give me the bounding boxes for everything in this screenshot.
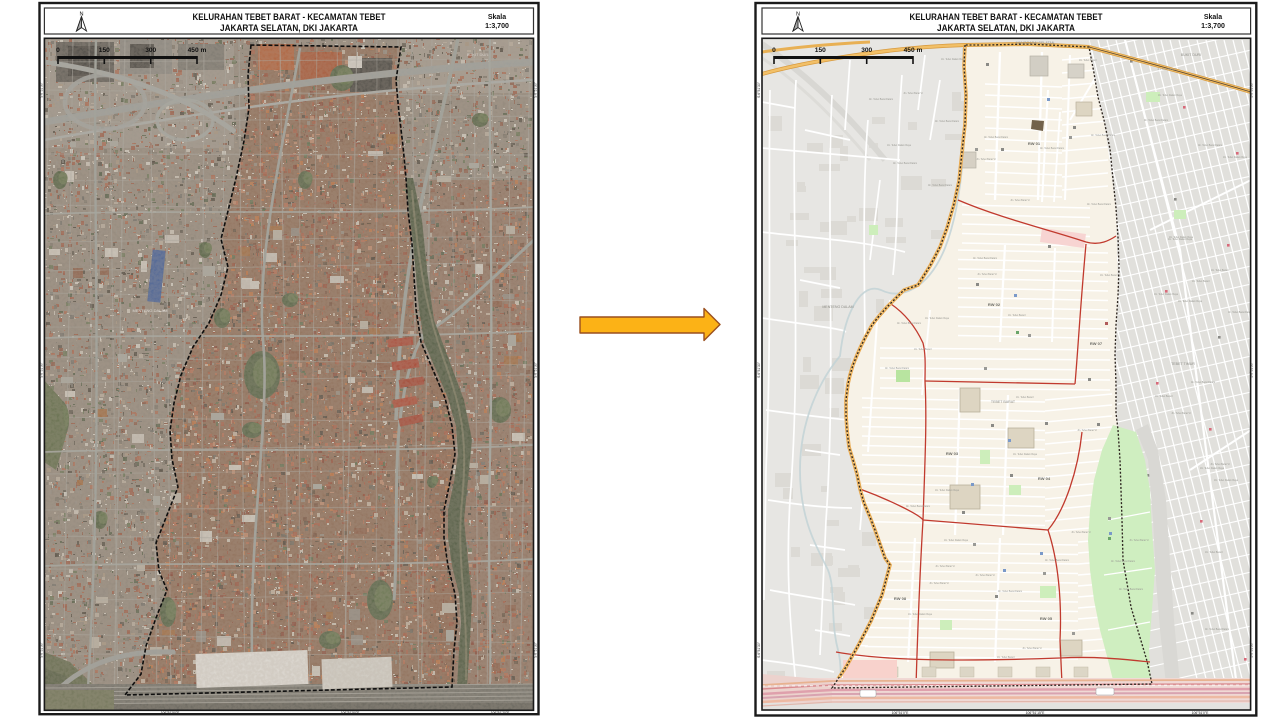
svg-text:Jln. Tebet Dalam Raya: Jln. Tebet Dalam Raya [1013,453,1038,456]
svg-text:MENTENG DALAM: MENTENG DALAM [822,305,853,309]
svg-text:Jln. Tebet Barat VI: Jln. Tebet Barat VI [1129,539,1149,542]
svg-text:Jln. Tebet Barat Dalam: Jln. Tebet Barat Dalam [1111,560,1135,563]
svg-text:S 6°51'30": S 6°51'30" [1250,641,1254,658]
svg-text:Jln. Tebet Barat VI: Jln. Tebet Barat VI [1071,531,1091,534]
svg-text:Jln. Tebet Barat Dalam: Jln. Tebet Barat Dalam [1091,134,1115,137]
svg-text:Skala: Skala [488,14,506,21]
svg-text:Jln. Tebet Dalam Raya: Jln. Tebet Dalam Raya [944,539,969,542]
svg-text:Jln. Tebet Barat Dalam: Jln. Tebet Barat Dalam [935,120,959,123]
svg-text:Jln. Tebet Barat Dalam: Jln. Tebet Barat Dalam [1144,119,1168,122]
svg-text:300: 300 [861,47,872,54]
svg-text:Jln. Tebet Barat Dalam: Jln. Tebet Barat Dalam [1205,628,1229,631]
svg-text:Skala: Skala [1204,14,1222,21]
svg-text:Jln. Tebet Barat Dalam: Jln. Tebet Barat Dalam [1198,144,1222,147]
svg-text:RW 05: RW 05 [1040,616,1053,621]
svg-text:S 6°51'30": S 6°51'30" [757,361,761,378]
svg-text:Jln. Tebet Dalam Raya: Jln. Tebet Dalam Raya [1158,94,1183,97]
svg-text:106°51'50"E: 106°51'50"E [341,711,360,715]
svg-text:Jln. Tebet Dalam Raya: Jln. Tebet Dalam Raya [935,489,960,492]
svg-text:Jln. Tebet Barat Dalam: Jln. Tebet Barat Dalam [973,257,997,260]
svg-text:JAKARTA SELATAN, DKI JAKARTA: JAKARTA SELATAN, DKI JAKARTA [937,23,1075,34]
svg-text:Jln. Tebet Dalam Raya: Jln. Tebet Dalam Raya [925,317,950,320]
svg-text:KELURAHAN TEBET BARAT - KECAMA: KELURAHAN TEBET BARAT - KECAMATAN TEBET [193,12,386,23]
svg-text:Jln. Tebet Barat VI: Jln. Tebet Barat VI [935,565,955,568]
svg-text:Jln. Tebet Dalam Raya: Jln. Tebet Dalam Raya [1154,293,1179,296]
svg-text:300: 300 [145,47,156,54]
svg-text:Jln. Tebet Barat Dalam: Jln. Tebet Barat Dalam [1119,588,1143,591]
svg-text:0: 0 [772,47,776,54]
svg-text:Jln. Tebet Dalam Raya: Jln. Tebet Dalam Raya [908,613,933,616]
svg-text:Jln. Tebet Dalam Raya: Jln. Tebet Dalam Raya [1168,238,1193,241]
svg-text:106°51'50"E: 106°51'50"E [161,711,180,715]
svg-text:S 6°51'30": S 6°51'30" [757,81,761,98]
svg-text:S 6°51'30": S 6°51'30" [534,641,538,658]
svg-text:1:3,700: 1:3,700 [485,23,509,30]
svg-text:Jln. Tebet Barat I: Jln. Tebet Barat I [1205,551,1223,554]
svg-text:Jln. Tebet Barat Dalam: Jln. Tebet Barat Dalam [1040,147,1064,150]
svg-text:Jln. Tebet Barat VI: Jln. Tebet Barat VI [977,273,997,276]
svg-text:Jln. Tebet Barat I: Jln. Tebet Barat I [1016,396,1034,399]
svg-text:450 m: 450 m [188,47,207,54]
svg-text:1:3,700: 1:3,700 [1201,23,1225,30]
svg-text:Jln. Tebet Barat I: Jln. Tebet Barat I [1192,280,1210,283]
svg-text:Jln. Tebet Dalam Raya: Jln. Tebet Dalam Raya [1200,467,1225,470]
svg-text:RW 01: RW 01 [1028,141,1041,146]
svg-text:Jln. Tebet Barat I: Jln. Tebet Barat I [997,656,1015,659]
svg-text:450 m: 450 m [904,47,923,54]
svg-text:Jln. Tebet Barat I: Jln. Tebet Barat I [1211,269,1229,272]
svg-text:S 6°51'30": S 6°51'30" [534,81,538,98]
svg-text:Jln. Tebet Barat Dalam: Jln. Tebet Barat Dalam [1045,559,1069,562]
svg-text:Jln. Tebet Barat VI: Jln. Tebet Barat VI [1010,199,1030,202]
svg-text:RW 04: RW 04 [1038,476,1051,481]
svg-text:Jln. Tebet Dalam Raya: Jln. Tebet Dalam Raya [1214,479,1239,482]
svg-text:150: 150 [815,47,826,54]
svg-text:Jln. Tebet Dalam Raya: Jln. Tebet Dalam Raya [887,144,912,147]
svg-text:MANGGARAI SELATAN: MANGGARAI SELATAN [1016,41,1055,45]
svg-text:Jln. Tebet Barat VI: Jln. Tebet Barat VI [975,574,995,577]
svg-text:Jln. Tebet Barat I: Jln. Tebet Barat I [1100,274,1118,277]
svg-text:Jln. Tebet Barat Dalam: Jln. Tebet Barat Dalam [984,136,1008,139]
svg-text:Jln. Tebet Barat VI: Jln. Tebet Barat VI [1171,412,1191,415]
svg-text:TEBET BARAT: TEBET BARAT [991,400,1016,404]
svg-text:Jln. Tebet Dalam Raya: Jln. Tebet Dalam Raya [1223,156,1248,159]
svg-text:Jln. Tebet Barat Dalam: Jln. Tebet Barat Dalam [1191,381,1215,384]
svg-text:Jln. Tebet Barat Dalam: Jln. Tebet Barat Dalam [897,322,921,325]
svg-text:JAKARTA SELATAN, DKI JAKARTA: JAKARTA SELATAN, DKI JAKARTA [220,23,358,34]
svg-text:RW 07: RW 07 [1090,341,1103,346]
svg-text:Jln. Tebet Dalam Raya: Jln. Tebet Dalam Raya [1178,300,1203,303]
svg-text:Jln. Tebet Barat Dalam: Jln. Tebet Barat Dalam [928,184,952,187]
svg-text:Jln. Tebet Barat Dalam: Jln. Tebet Barat Dalam [1087,203,1111,206]
svg-text:BUKIT DURI: BUKIT DURI [1181,53,1201,57]
svg-text:Jln. Tebet Barat VI: Jln. Tebet Barat VI [976,158,996,161]
svg-text:Jln. Tebet Barat VI: Jln. Tebet Barat VI [903,92,923,95]
svg-text:Jln. Tebet Barat VI: Jln. Tebet Barat VI [1022,647,1042,650]
svg-text:Jln. Tebet Barat VI: Jln. Tebet Barat VI [1157,68,1177,71]
svg-text:Jln. Tebet Barat Dalam: Jln. Tebet Barat Dalam [906,505,930,508]
svg-text:Jln. Tebet Barat I: Jln. Tebet Barat I [1008,314,1026,317]
svg-text:S 6°51'30": S 6°51'30" [40,361,44,378]
svg-text:S 6°51'30": S 6°51'30" [40,81,44,98]
svg-text:Jln. Tebet Barat Dalam: Jln. Tebet Barat Dalam [869,98,893,101]
svg-text:Jln. Tebet Barat I: Jln. Tebet Barat I [1079,59,1097,62]
svg-text:Jln. Tebet Barat VI: Jln. Tebet Barat VI [1077,429,1097,432]
svg-text:106°51'20"E: 106°51'20"E [491,711,510,715]
svg-text:S 6°51'30": S 6°51'30" [534,361,538,378]
svg-text:106°51'15"E: 106°51'15"E [1026,711,1045,715]
svg-text:106°51'0"E: 106°51'0"E [892,711,910,715]
svg-text:S 6°51'30": S 6°51'30" [757,641,761,658]
svg-text:Jln. Tebet Barat Dalam: Jln. Tebet Barat Dalam [1228,311,1252,314]
svg-text:150: 150 [99,47,110,54]
svg-text:Jln. Tebet Barat VI: Jln. Tebet Barat VI [1210,463,1230,466]
svg-text:Jln. Tebet Barat VI: Jln. Tebet Barat VI [929,582,949,585]
svg-text:Jln. Tebet Dalam Raya: Jln. Tebet Dalam Raya [941,58,966,61]
svg-text:S 6°51'30": S 6°51'30" [40,641,44,658]
svg-text:Jln. Tebet Barat Dalam: Jln. Tebet Barat Dalam [893,162,917,165]
svg-text:0: 0 [56,47,60,54]
svg-text:Jln. Tebet Barat I: Jln. Tebet Barat I [1155,395,1173,398]
svg-text:Jln. Tebet Barat Dalam: Jln. Tebet Barat Dalam [885,367,909,370]
svg-text:RW 03: RW 03 [946,451,959,456]
svg-text:RW 08: RW 08 [894,596,907,601]
svg-text:S 6°51'30": S 6°51'30" [1250,361,1254,378]
svg-text:S 6°51'30": S 6°51'30" [1250,81,1254,98]
svg-text:RW 02: RW 02 [988,302,1001,307]
svg-text:Jln. Tebet Barat Dalam: Jln. Tebet Barat Dalam [998,590,1022,593]
svg-text:TEBET TIMUR: TEBET TIMUR [1171,362,1195,366]
svg-text:106°51'0"E: 106°51'0"E [1192,711,1210,715]
svg-text:KELURAHAN TEBET BARAT - KECAMA: KELURAHAN TEBET BARAT - KECAMATAN TEBET [910,12,1103,23]
svg-text:Jln. Tebet Barat I: Jln. Tebet Barat I [914,348,932,351]
